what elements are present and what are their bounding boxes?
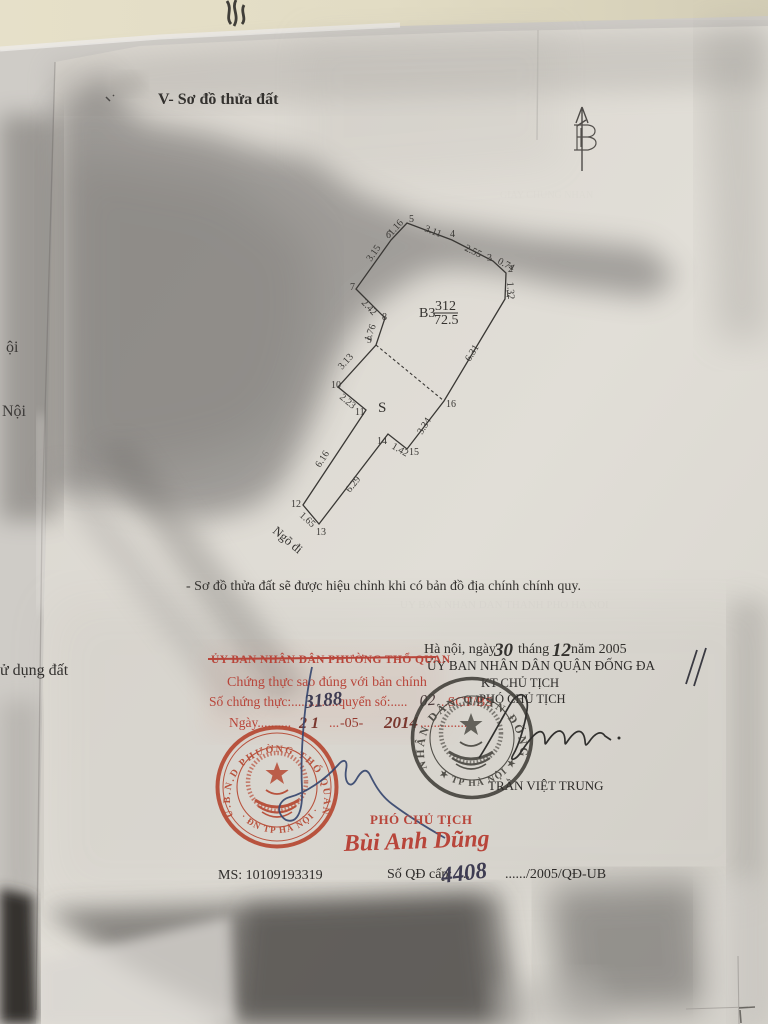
svg-text:- Sơ đồ thửa đất sẽ được hiệu: - Sơ đồ thửa đất sẽ được hiệu chỉnh khi … — [186, 579, 581, 594]
svg-text:10: 10 — [331, 380, 341, 391]
svg-text:15: 15 — [409, 447, 419, 458]
svg-text:12: 12 — [291, 499, 301, 510]
svg-text:ội: ội — [6, 339, 19, 356]
svg-text:16: 16 — [446, 399, 456, 410]
svg-text:MS: 10109193319: MS: 10109193319 — [218, 868, 323, 883]
svg-text:5: 5 — [409, 214, 414, 225]
svg-text:72.5: 72.5 — [434, 313, 459, 328]
svg-text:PHÓ CHỦ TỊCH: PHÓ CHỦ TỊCH — [370, 812, 473, 827]
svg-text:Bùi Anh Dũng: Bùi Anh Dũng — [342, 826, 490, 857]
svg-text:4: 4 — [450, 229, 455, 240]
svg-text:....../2005/QĐ-UB: ....../2005/QĐ-UB — [505, 867, 606, 882]
svg-text:ử dụng đất: ử dụng đất — [0, 662, 69, 679]
svg-text:S: S — [378, 400, 386, 416]
svg-text:tháng: tháng — [518, 642, 549, 657]
svg-text:-05-: -05- — [340, 716, 364, 731]
svg-text:8: 8 — [382, 312, 387, 323]
svg-text:năm 2005: năm 2005 — [571, 642, 627, 657]
svg-text:B3: B3 — [419, 306, 435, 321]
svg-text:Chứng thực sao đúng với bản ch: Chứng thực sao đúng với bản chính — [227, 675, 427, 690]
svg-text:13: 13 — [316, 527, 326, 538]
svg-text:14: 14 — [377, 436, 387, 447]
svg-text:GIAY CHUNG NHAN: GIAY CHUNG NHAN — [500, 190, 593, 201]
svg-text:UY BAN NHAN DAN THANH PHO HA N: UY BAN NHAN DAN THANH PHO HA NOI — [400, 599, 609, 611]
svg-text:3: 3 — [487, 253, 492, 264]
svg-text:1.32: 1.32 — [504, 281, 516, 299]
svg-text:7: 7 — [350, 282, 355, 293]
svg-text:V- Sơ đồ thửa đất: V- Sơ đồ thửa đất — [158, 91, 279, 108]
svg-text:312: 312 — [435, 299, 456, 314]
svg-text:3188: 3188 — [302, 688, 343, 713]
svg-text:Nội: Nội — [2, 403, 27, 420]
svg-text:2 1: 2 1 — [298, 715, 319, 732]
svg-text:...: ... — [329, 715, 339, 730]
svg-text:TRẦN VIỆT TRUNG: TRẦN VIỆT TRUNG — [488, 778, 604, 793]
svg-text:ỦY BAN NHÂN DÂN QUẬN ĐỐNG ĐA: ỦY BAN NHÂN DÂN QUẬN ĐỐNG ĐA — [427, 658, 656, 673]
svg-text:11: 11 — [355, 407, 365, 418]
